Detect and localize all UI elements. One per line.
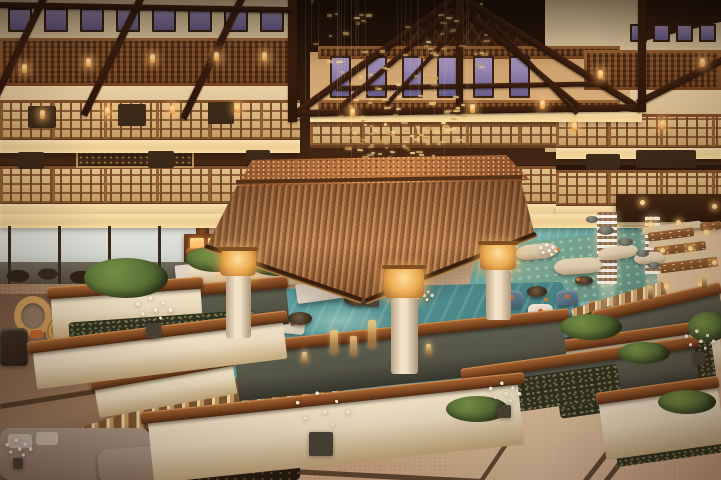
white-orchid: [128, 292, 178, 332]
bollard-light: [648, 286, 653, 299]
wall-sconce-light: [170, 105, 175, 114]
chandelier-light: [434, 131, 440, 134]
chandelier-light: [445, 131, 452, 134]
chandelier-wire: [401, 0, 402, 64]
chandelier-light: [484, 33, 488, 36]
chandelier-light: [384, 141, 389, 144]
chandelier-light: [311, 0, 315, 3]
chandelier-light: [416, 126, 420, 129]
chandelier-wire: [417, 0, 418, 39]
pond-rock: [598, 226, 614, 235]
chandelier-light: [480, 3, 483, 5]
chandelier-light: [329, 35, 332, 37]
chandelier-light: [461, 113, 469, 116]
chandelier-wire: [318, 0, 319, 127]
clerestory-pane: [152, 8, 176, 32]
green-shrub: [658, 390, 716, 414]
wall-sconce-light: [540, 100, 545, 109]
chandelier-light: [350, 106, 353, 109]
chandelier-light: [413, 137, 418, 140]
chandelier-light: [356, 138, 361, 141]
balcony-door: [148, 151, 174, 168]
pond-rock: [648, 262, 660, 269]
chandelier-light: [410, 135, 414, 137]
clerestory-pane: [44, 8, 68, 32]
restaurant-header: [616, 194, 721, 222]
wall-sconce-light: [262, 52, 267, 61]
chandelier-light: [450, 29, 456, 32]
chandelier-light: [359, 76, 363, 79]
hotel-lobby-photo: Grand hotel lobby atrium: timber roof tr…: [0, 0, 721, 480]
chandelier-light: [446, 52, 450, 54]
wall-sconce-light: [598, 70, 603, 79]
chandelier-light: [456, 139, 463, 141]
koi-fish: [576, 278, 580, 281]
table-lamp: [664, 284, 669, 289]
pond-rock: [586, 216, 598, 223]
chandelier-wire: [463, 0, 464, 42]
orchid-pot: [497, 405, 510, 418]
chandelier-wire: [410, 0, 411, 119]
table-lamp: [640, 200, 645, 205]
column-capital: [480, 244, 516, 270]
column-capital: [220, 250, 256, 276]
koi-fish: [544, 298, 548, 301]
table-lamp: [712, 204, 717, 209]
chandelier-light: [384, 123, 387, 126]
orchid-pot: [13, 458, 24, 469]
chandelier-light: [372, 131, 375, 133]
chandelier-light: [340, 71, 344, 73]
orchid-pot: [146, 323, 161, 338]
table-lamp: [712, 260, 717, 265]
table-lamp: [676, 220, 681, 225]
chandelier-light: [345, 147, 351, 150]
chandelier-light: [437, 143, 441, 145]
column-capital: [384, 268, 424, 298]
chandelier-light: [412, 98, 417, 100]
chandelier-light: [410, 152, 415, 154]
chandelier-light: [424, 137, 430, 139]
clerestory-pane: [80, 8, 104, 32]
wall-sconce-light: [235, 104, 240, 113]
wall-sconce-light: [660, 120, 665, 129]
armchair-blue: [555, 289, 578, 306]
chandelier-light: [380, 50, 385, 53]
chandelier-light: [368, 102, 372, 104]
chandelier-light: [451, 118, 457, 121]
chandelier-light: [419, 56, 424, 59]
chandelier-light: [426, 41, 431, 43]
chandelier-light: [441, 48, 447, 50]
chandelier-light: [474, 53, 478, 55]
wall-sconce-light: [214, 52, 219, 61]
chandelier-light: [313, 43, 319, 45]
orange-ottoman: [30, 330, 43, 338]
chandelier-light: [385, 147, 389, 150]
decor-glass-bottle: [330, 330, 338, 354]
chandelier-light: [374, 129, 377, 131]
clerestory-pane: [653, 24, 670, 42]
chandelier-light: [397, 95, 401, 98]
white-orchid: [482, 378, 526, 413]
column-shaft: [486, 270, 511, 320]
chandelier-light: [327, 14, 332, 17]
chandelier-light: [404, 130, 410, 133]
bollard-light: [702, 276, 707, 289]
chandelier-light: [459, 45, 466, 47]
koi-fish: [556, 248, 560, 251]
balcony-door: [118, 104, 146, 126]
decor-glass-bottle: [368, 320, 376, 348]
chandelier-light: [342, 131, 348, 134]
white-orchid: [282, 384, 360, 446]
balcony-door: [18, 152, 44, 169]
chandelier-light: [419, 154, 425, 156]
chandelier-light: [419, 133, 424, 135]
chandelier-light: [361, 120, 365, 122]
white-orchid: [678, 326, 720, 360]
orchid-pot: [693, 352, 706, 365]
round-table: [527, 286, 547, 297]
chandelier-light: [387, 118, 395, 120]
wall-sconce-light: [40, 110, 45, 119]
green-shrub: [618, 342, 670, 364]
chandelier-light: [357, 149, 363, 152]
chandelier-light: [377, 88, 382, 91]
decor-glass-bottle: [350, 336, 357, 356]
table-lamp: [704, 230, 709, 235]
chandelier-light: [368, 146, 374, 148]
chandelier-light: [455, 107, 460, 110]
white-orchid: [536, 242, 560, 261]
wall-sconce-light: [700, 58, 705, 67]
chandelier-light: [361, 19, 367, 22]
balcony-door: [636, 150, 696, 168]
chandelier-wire: [397, 0, 398, 148]
white-orchid: [0, 436, 36, 465]
chandelier-light: [483, 39, 490, 42]
chandelier-wire: [344, 0, 345, 78]
chandelier-wire: [468, 0, 469, 101]
chandelier-light: [425, 75, 433, 78]
wall-sconce-light: [105, 107, 110, 116]
orchid-pot: [309, 432, 332, 455]
chandelier-light: [403, 147, 409, 149]
chandelier-light: [326, 59, 332, 62]
chandelier-light: [440, 33, 444, 35]
chandelier-light: [348, 82, 355, 85]
chandelier-light: [403, 141, 408, 143]
chandelier-wire: [337, 0, 338, 153]
chandelier-light: [369, 74, 373, 76]
chandelier-light: [390, 151, 395, 153]
chandelier-wire: [311, 0, 312, 42]
chandelier-light: [370, 125, 373, 127]
chandelier-light: [433, 57, 438, 60]
chandelier-light: [440, 21, 447, 23]
wall-sconce-light: [150, 54, 155, 63]
column-shaft: [226, 276, 251, 338]
round-table: [288, 312, 312, 325]
chandelier-wire: [358, 0, 359, 76]
chandelier-light: [353, 131, 357, 134]
wall-sconce-light: [22, 64, 27, 73]
chandelier-light: [384, 106, 391, 109]
chandelier-light: [426, 141, 431, 144]
wall-sconce-light: [572, 122, 577, 131]
chandelier-light: [385, 68, 390, 70]
column-shaft: [391, 298, 418, 374]
chandelier-light: [382, 99, 389, 102]
chandelier-light: [433, 76, 438, 79]
chandelier-light: [443, 124, 449, 128]
chandelier-light: [428, 48, 433, 50]
chandelier-light: [378, 153, 382, 155]
clerestory-pane: [699, 24, 716, 42]
chandelier-wire: [418, 0, 419, 98]
chandelier-wire: [351, 0, 352, 158]
pond-rock: [636, 250, 649, 257]
chandelier-light: [359, 142, 363, 144]
chandelier-light: [366, 14, 372, 17]
balcony-door: [586, 154, 620, 170]
chandelier-wire: [405, 0, 406, 39]
koi-fish: [590, 300, 594, 303]
chandelier-wire: [341, 0, 342, 105]
chandelier-light: [446, 17, 452, 19]
wall-sconce-light: [86, 58, 91, 67]
chandelier-light: [401, 122, 408, 124]
clerestory-pane: [676, 24, 693, 42]
fretwork-band-left: [0, 38, 292, 86]
chandelier-light: [454, 20, 459, 22]
chandelier-light: [370, 98, 374, 100]
bollard-light: [302, 352, 307, 365]
chandelier-light: [391, 134, 396, 136]
chandelier-wire: [305, 0, 306, 101]
chandelier-light: [427, 127, 433, 130]
chandelier-light: [363, 123, 366, 125]
bollard-light: [426, 344, 431, 357]
chandelier-light: [429, 102, 436, 105]
pond-rock: [618, 238, 633, 246]
chandelier-light: [396, 107, 401, 110]
chandelier-light: [449, 127, 456, 130]
green-shrub: [560, 314, 622, 340]
table-lamp: [648, 222, 653, 227]
balcony-door: [208, 102, 234, 124]
chandelier-wire: [466, 0, 467, 129]
chandelier-light: [362, 139, 367, 142]
table-lamp: [688, 246, 693, 251]
chandelier-light: [453, 95, 459, 98]
chandelier-light: [363, 92, 368, 94]
chandelier-light: [391, 131, 395, 133]
chandelier-light: [461, 104, 465, 106]
roof-beam: [638, 0, 646, 112]
chandelier-light: [360, 115, 363, 118]
sofa-pillow: [36, 432, 58, 445]
chandelier-wire: [446, 0, 447, 78]
chandelier-light: [416, 151, 423, 153]
chandelier-light: [424, 45, 429, 47]
armchair-dark: [0, 328, 28, 366]
chandelier-light: [403, 54, 408, 56]
